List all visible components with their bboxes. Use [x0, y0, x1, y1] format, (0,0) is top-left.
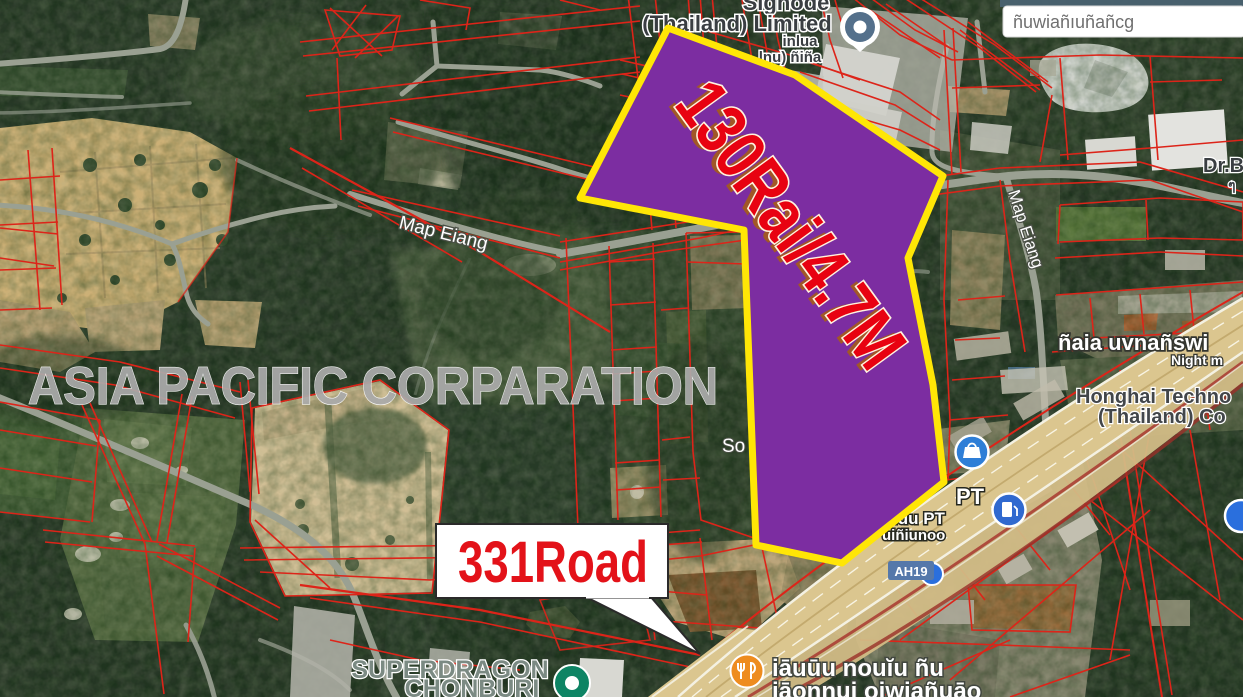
svg-text:331Road: 331Road	[458, 530, 648, 595]
svg-text:PT: PT	[956, 484, 985, 509]
svg-text:uiñiunoo: uiñiunoo	[882, 527, 945, 544]
svg-text:ASIA PACIFIC CORPARATION: ASIA PACIFIC CORPARATION	[28, 357, 718, 416]
svg-text:Night m: Night m	[1171, 352, 1223, 368]
svg-text:(Thailand) Co: (Thailand) Co	[1098, 406, 1226, 428]
svg-text:ñuwiañıuñañcg: ñuwiañıuñañcg	[1013, 12, 1134, 32]
svg-text:So: So	[722, 436, 745, 457]
svg-text:CHONBURI: CHONBURI	[405, 675, 540, 697]
svg-text:Dr.B: Dr.B	[1203, 155, 1243, 177]
svg-text:iāonnuj oiwiañuāo: iāonnuj oiwiañuāo	[772, 678, 981, 697]
svg-text:ๆ: ๆ	[1228, 177, 1236, 193]
svg-text:Honghai Techno: Honghai Techno	[1076, 386, 1231, 408]
svg-text:AH19: AH19	[894, 564, 927, 579]
svg-text:inlua: inlua	[782, 33, 818, 50]
